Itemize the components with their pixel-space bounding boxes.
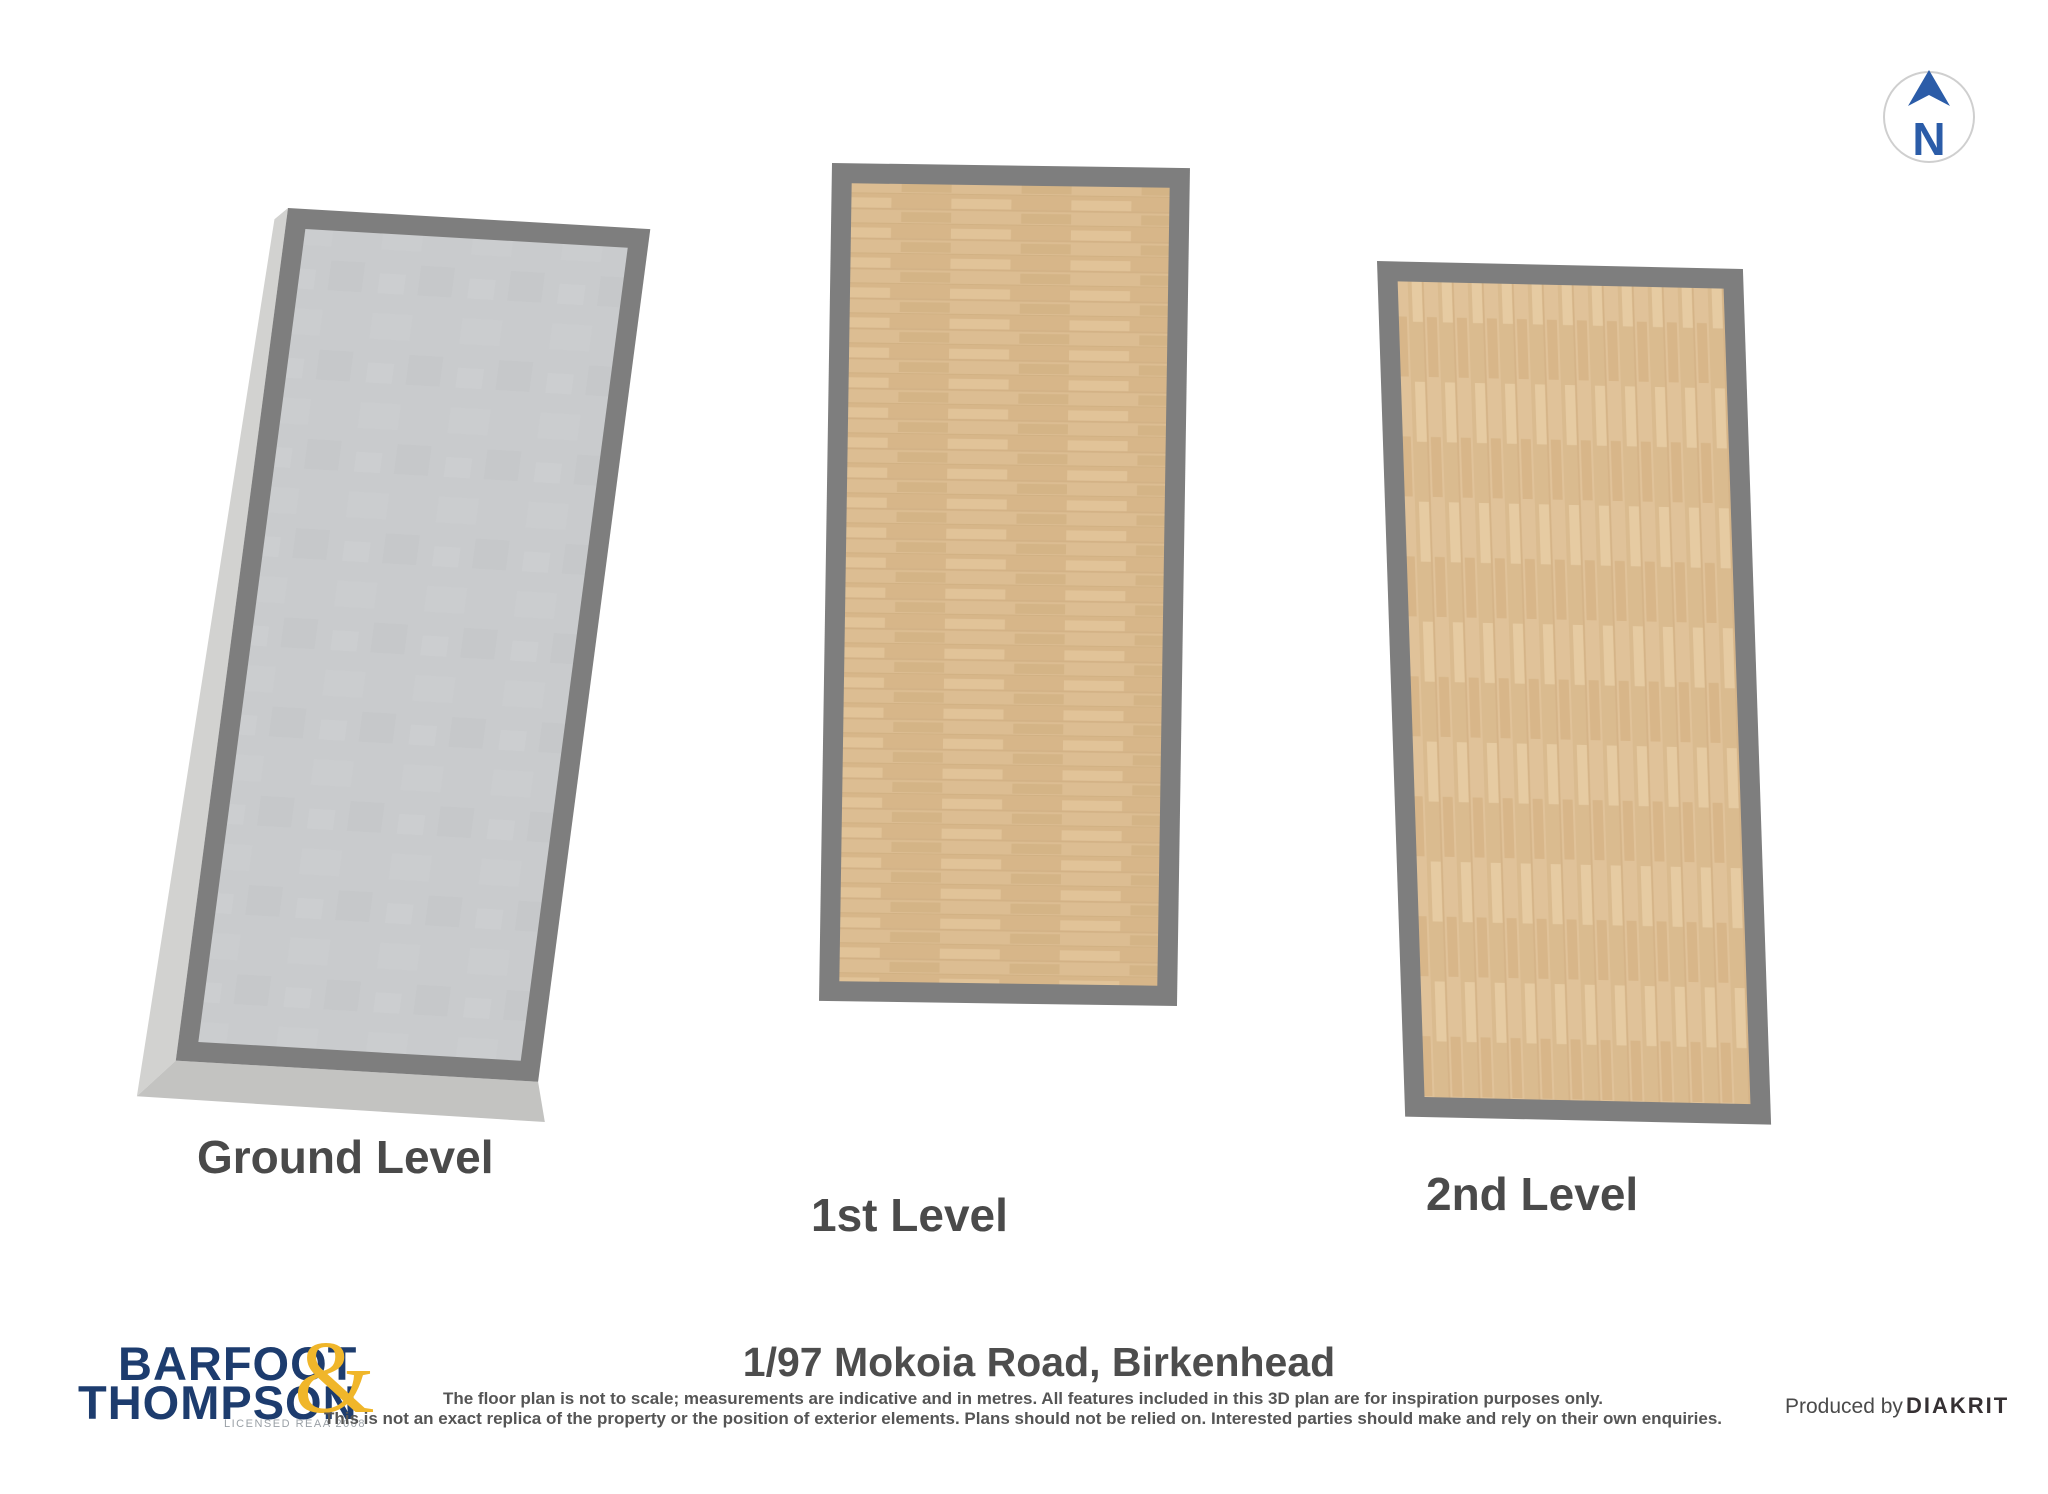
svg-text:1/97 Mokoia Road, Birkenhead: 1/97 Mokoia Road, Birkenhead [743,1339,1335,1385]
svg-text:DIAKRIT: DIAKRIT [1906,1393,2009,1418]
svg-text:Produced by: Produced by [1785,1395,1903,1418]
svg-text:1st Level: 1st Level [811,1189,1008,1241]
svg-text:N: N [1912,113,1945,165]
svg-text:This is not an exact replica o: This is not an exact replica of the prop… [324,1409,1722,1428]
svg-text:The floor plan is not to scale: The floor plan is not to scale; measurem… [443,1389,1603,1408]
svg-text:Ground Level: Ground Level [197,1131,493,1183]
svg-text:2nd Level: 2nd Level [1426,1168,1638,1220]
